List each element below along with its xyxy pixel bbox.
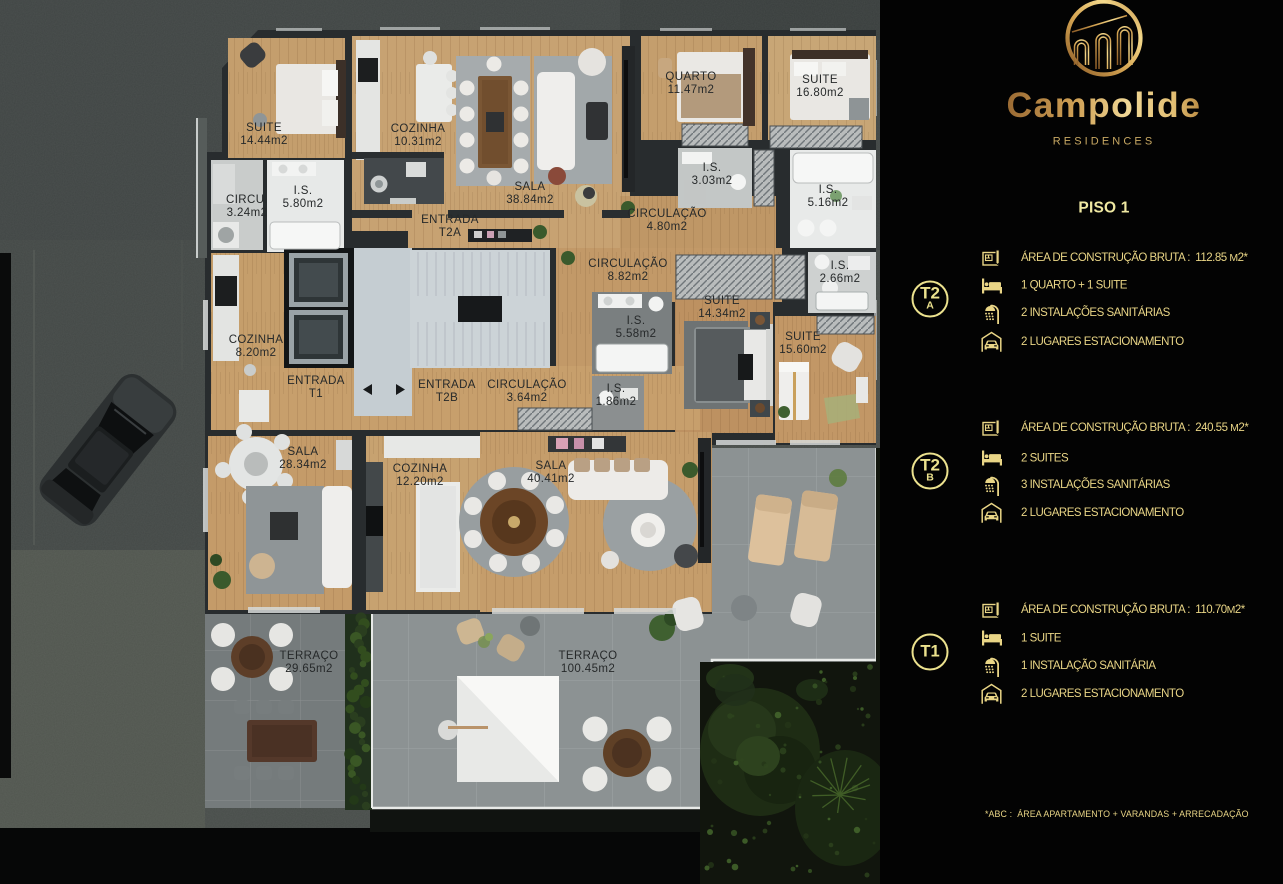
- svg-text:38.84m2: 38.84m2: [506, 194, 554, 206]
- svg-text:TERRAÇO: TERRAÇO: [558, 650, 617, 662]
- svg-text:I.S.: I.S.: [819, 184, 838, 196]
- svg-text:I.S.: I.S.: [294, 185, 313, 197]
- svg-text:Campolide: Campolide: [1007, 85, 1202, 125]
- svg-text:CIRCULAÇÃO: CIRCULAÇÃO: [487, 378, 566, 391]
- svg-text:28.34m2: 28.34m2: [279, 459, 327, 471]
- svg-text:SUITE: SUITE: [802, 74, 838, 86]
- svg-text:I.S.: I.S.: [627, 315, 646, 327]
- svg-text:11.47m2: 11.47m2: [668, 84, 715, 96]
- svg-text:40.41m2: 40.41m2: [527, 473, 575, 485]
- svg-text:8.82m2: 8.82m2: [608, 271, 649, 283]
- svg-text:ENTRADA: ENTRADA: [287, 375, 345, 387]
- svg-text:100.45m2: 100.45m2: [561, 663, 615, 675]
- svg-text:QUARTO: QUARTO: [665, 71, 716, 83]
- svg-text:15.60m2: 15.60m2: [779, 344, 827, 356]
- svg-text:12.20m2: 12.20m2: [396, 476, 444, 488]
- svg-text:T2A: T2A: [439, 227, 461, 239]
- svg-text:29.65m2: 29.65m2: [285, 663, 333, 675]
- svg-text:5.16m2: 5.16m2: [808, 197, 849, 209]
- svg-text:3.64m2: 3.64m2: [507, 392, 548, 404]
- svg-text:2.66m2: 2.66m2: [820, 273, 861, 285]
- svg-text:T2B: T2B: [436, 392, 458, 404]
- svg-text:SALA: SALA: [535, 460, 566, 472]
- svg-text:10.31m2: 10.31m2: [394, 136, 442, 148]
- svg-text:I.S.: I.S.: [703, 162, 722, 174]
- svg-text:8.20m2: 8.20m2: [236, 347, 277, 359]
- svg-text:SALA: SALA: [287, 446, 318, 458]
- svg-text:14.34m2: 14.34m2: [698, 308, 746, 320]
- svg-text:T1: T1: [309, 388, 323, 400]
- svg-text:SUITE: SUITE: [785, 331, 821, 343]
- svg-text:PISO 1: PISO 1: [1078, 200, 1129, 217]
- svg-text:SUITE: SUITE: [246, 122, 282, 134]
- svg-text:I.S.: I.S.: [607, 383, 626, 395]
- svg-text:5.80m2: 5.80m2: [283, 198, 324, 210]
- svg-text:3.24m2: 3.24m2: [227, 207, 268, 219]
- svg-text:ENTRADA: ENTRADA: [418, 379, 476, 391]
- svg-text:3.03m2: 3.03m2: [692, 175, 733, 187]
- svg-text:I.S.: I.S.: [831, 260, 850, 272]
- svg-text:1.86m2: 1.86m2: [596, 396, 637, 408]
- svg-text:COZINHA: COZINHA: [229, 334, 284, 346]
- svg-text:COZINHA: COZINHA: [391, 123, 446, 135]
- svg-text:16.80m2: 16.80m2: [796, 87, 844, 99]
- svg-text:4.80m2: 4.80m2: [647, 221, 688, 233]
- svg-text:SUITE: SUITE: [704, 295, 740, 307]
- svg-text:CIRCU.: CIRCU.: [226, 194, 268, 206]
- svg-text:CIRCULAÇÃO: CIRCULAÇÃO: [627, 207, 706, 220]
- svg-text:SALA: SALA: [514, 181, 545, 193]
- svg-text:RESIDENCES: RESIDENCES: [1053, 136, 1156, 148]
- svg-text:COZINHA: COZINHA: [393, 463, 448, 475]
- svg-text:ENTRADA: ENTRADA: [421, 214, 479, 226]
- svg-text:CIRCULAÇÃO: CIRCULAÇÃO: [588, 257, 667, 270]
- svg-text:TERRAÇO: TERRAÇO: [279, 650, 338, 662]
- svg-text:5.58m2: 5.58m2: [616, 328, 657, 340]
- svg-text:14.44m2: 14.44m2: [240, 135, 288, 147]
